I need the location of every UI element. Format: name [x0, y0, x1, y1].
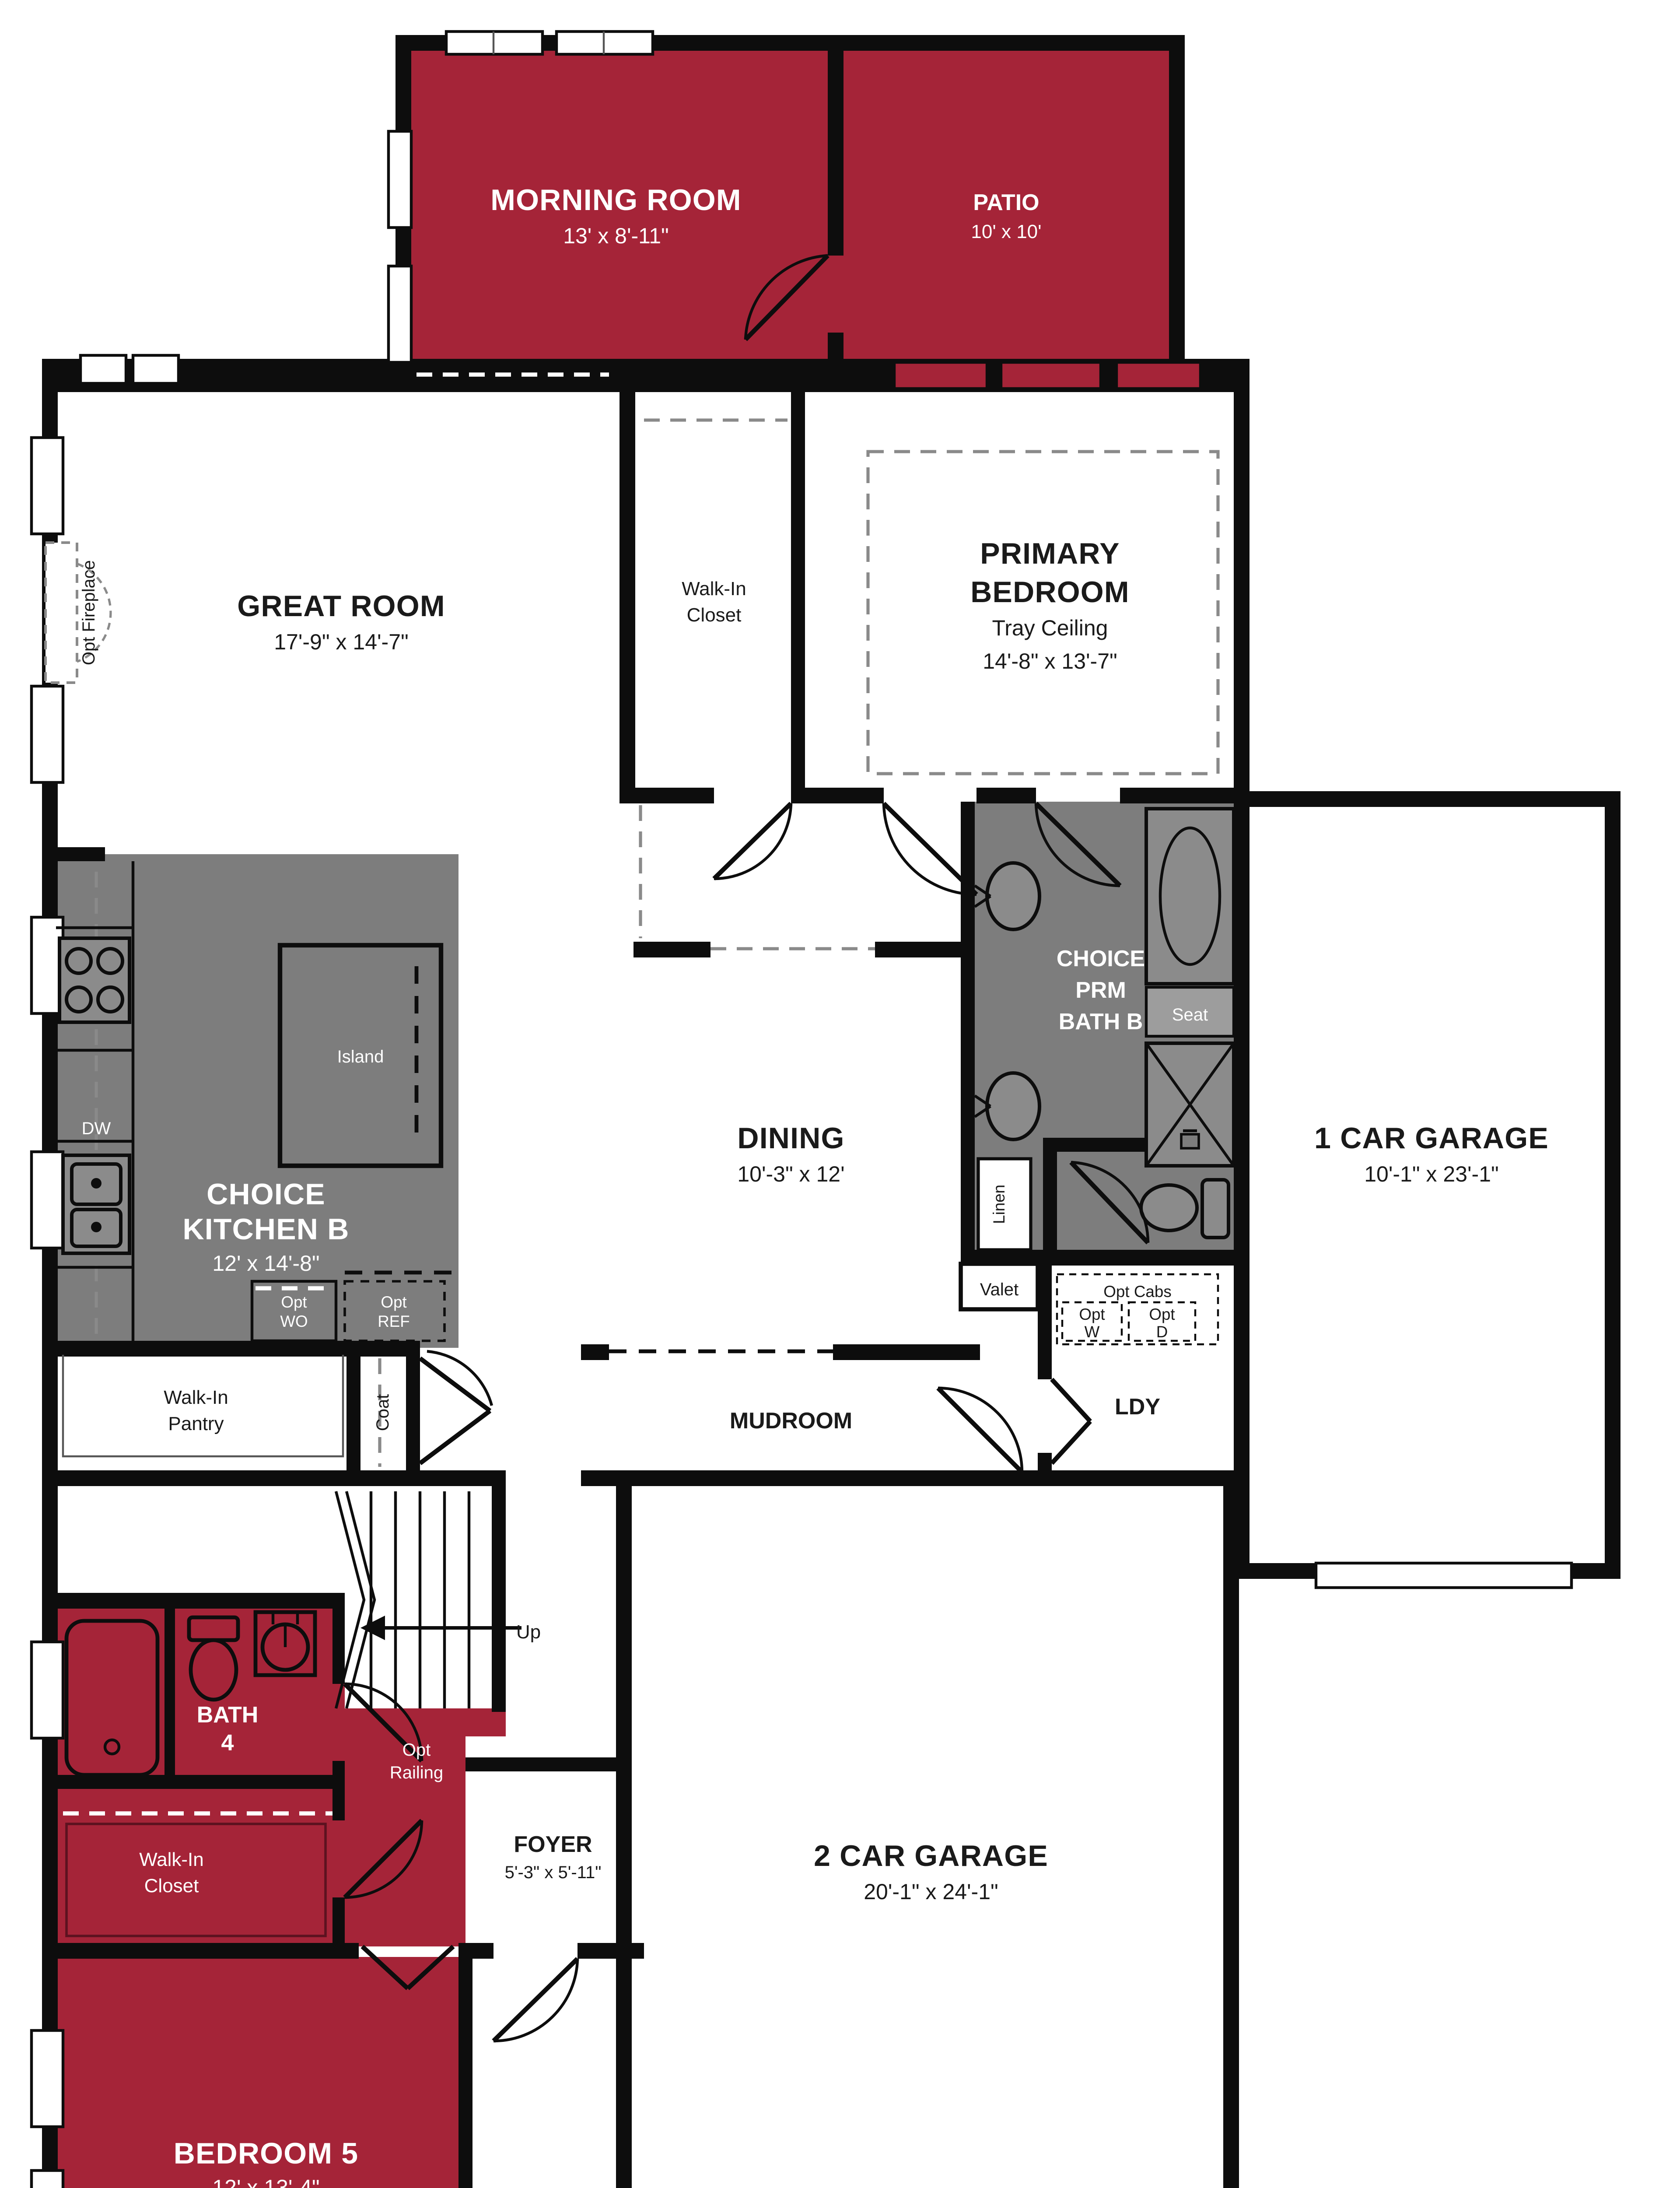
opt-wo-label-1: Opt: [281, 1293, 307, 1311]
opt-fireplace-label: Opt Fireplace: [79, 560, 98, 665]
opt-ref-label-1: Opt: [381, 1293, 406, 1311]
opt-cabs-label: Opt Cabs: [1103, 1283, 1171, 1301]
patio-label: PATIO: [973, 190, 1039, 215]
door-laundry: [1052, 1379, 1090, 1463]
tub-icon: [1146, 809, 1234, 984]
kitchen-label-1: CHOICE: [206, 1178, 325, 1211]
great-room-dims: 17'-9" x 14'-7": [274, 630, 409, 654]
primary-closet-label-2: Closet: [687, 604, 742, 626]
morning-room-label: MORNING ROOM: [490, 183, 741, 217]
tray-ceiling-outline: [868, 452, 1218, 774]
linen-label: Linen: [990, 1185, 1008, 1224]
garage2-label: 2 CAR GARAGE: [814, 1839, 1048, 1872]
opt-w-label-1: Opt: [1079, 1305, 1105, 1323]
garage1-dims: 10'-1" x 23'-1": [1364, 1162, 1499, 1186]
bath4-label-1: BATH: [197, 1702, 259, 1728]
opt-wo-label-2: WO: [280, 1312, 308, 1330]
garage1-label: 1 CAR GARAGE: [1314, 1122, 1549, 1155]
dining-dims: 10'-3" x 12': [737, 1162, 844, 1186]
bedroom5-dims: 12' x 13'-4": [212, 2175, 319, 2188]
opt-d-label-2: D: [1156, 1323, 1168, 1341]
floor-plan-canvas: MORNING ROOM 13' x 8'-11" PATIO 10' x 10…: [0, 0, 1680, 2188]
primary-bedroom-label-3: Tray Ceiling: [992, 616, 1108, 640]
dishwasher-label: DW: [82, 1119, 111, 1138]
morning-room-dims: 13' x 8'-11": [563, 224, 669, 248]
great-room-label: GREAT ROOM: [237, 589, 445, 623]
door-coat-closet: [420, 1351, 492, 1463]
opt-railing-label-2: Railing: [390, 1763, 443, 1782]
shower-icon: [1146, 1043, 1234, 1166]
primary-bedroom-label-1: PRIMARY: [980, 537, 1120, 570]
foyer-label: FOYER: [514, 1832, 592, 1857]
island-label: Island: [337, 1047, 384, 1066]
floor-plan-page: MORNING ROOM 13' x 8'-11" PATIO 10' x 10…: [0, 0, 1680, 2188]
toilet-icon: [189, 1617, 238, 1700]
valet-label: Valet: [980, 1280, 1018, 1299]
opt-ref-label-2: REF: [378, 1312, 410, 1330]
bedroom5-label: BEDROOM 5: [174, 2137, 359, 2170]
kitchen-sink-icon: [63, 1155, 129, 1253]
coat-label: Coat: [373, 1394, 392, 1431]
door-front-entry: [493, 1959, 577, 2041]
seat-label: Seat: [1172, 1005, 1208, 1024]
opt-railing-label-1: Opt: [402, 1740, 430, 1760]
cooktop-icon: [59, 938, 129, 1022]
door-primary-closet: [714, 803, 791, 879]
laundry-label: LDY: [1115, 1394, 1160, 1420]
up-label: Up: [516, 1621, 541, 1643]
primary-closet-label-1: Walk-In: [682, 578, 746, 600]
pedestal-sink-icon: [255, 1612, 315, 1675]
dining-label: DINING: [737, 1122, 844, 1155]
mudroom-label: MUDROOM: [730, 1408, 852, 1434]
bath-b-label-1: CHOICE: [1057, 946, 1145, 971]
garage2-dims: 20'-1" x 24'-1": [864, 1879, 998, 1904]
opt-wall-oven-box: [252, 1281, 336, 1341]
pantry-label-2: Pantry: [168, 1413, 224, 1434]
primary-bedroom-label-2: BEDROOM: [970, 575, 1130, 609]
door-mudroom-to-garage: [938, 1388, 1022, 1472]
bath-b-label-2: PRM: [1075, 978, 1126, 1003]
bath-b-label-3: BATH B: [1059, 1009, 1143, 1034]
pantry-label-1: Walk-In: [164, 1387, 228, 1408]
opt-fireplace-outline: [45, 543, 111, 683]
patio-dims: 10' x 10': [971, 221, 1041, 242]
bath4-label-2: 4: [221, 1730, 234, 1756]
primary-bedroom-dims: 14'-8" x 13'-7": [983, 649, 1117, 673]
kitchen-label-2: KITCHEN B: [182, 1213, 349, 1246]
opt-w-label-2: W: [1085, 1323, 1100, 1341]
opt-d-label-1: Opt: [1149, 1305, 1175, 1323]
closet2-label-1: Walk-In: [139, 1849, 204, 1870]
kitchen-dims: 12' x 14'-8": [212, 1251, 319, 1276]
closet2-label-2: Closet: [144, 1875, 199, 1897]
foyer-dims: 5'-3" x 5'-11": [505, 1863, 602, 1882]
tub-icon: [66, 1621, 157, 1775]
